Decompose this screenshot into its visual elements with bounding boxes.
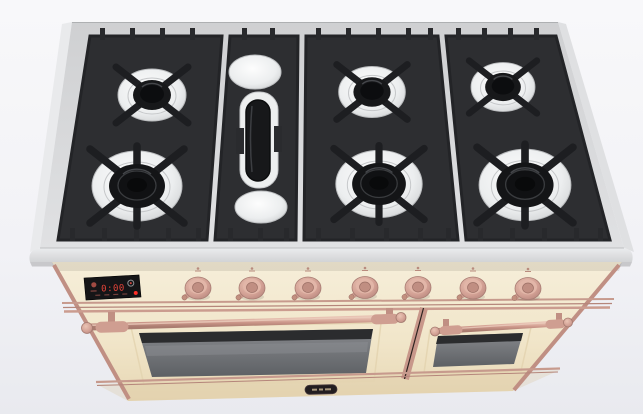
handle-end-ball-left (82, 323, 93, 334)
burner-center-griddle (246, 100, 270, 181)
grate-section-center-griddle (215, 28, 298, 241)
badge-wordmark (312, 389, 317, 391)
handle-end-ball-left (431, 327, 440, 336)
burner-right-front (477, 144, 573, 226)
brand-badge (305, 385, 337, 395)
cooktop-shadow (52, 262, 622, 271)
burner-right-rear (469, 61, 537, 114)
render-canvas: 0:00 (0, 0, 643, 414)
display-time: 0:00 (101, 283, 125, 294)
burner-middle-front (334, 146, 424, 223)
burner-middle-rear (337, 65, 408, 120)
display-mode-label (91, 290, 97, 292)
burner-left-rear (116, 67, 188, 123)
handle-end-ball-right (396, 313, 406, 323)
range-product-render: 0:00 (0, 0, 643, 414)
handle-end-ball-right (564, 318, 573, 327)
cooktop (29, 22, 634, 267)
cooktop-front-edge (29, 248, 632, 262)
grate-section-middle (304, 28, 458, 241)
control-display[interactable]: 0:00 (84, 275, 141, 300)
burner-left-front (90, 146, 184, 226)
range-body: 0:00 (52, 262, 622, 401)
